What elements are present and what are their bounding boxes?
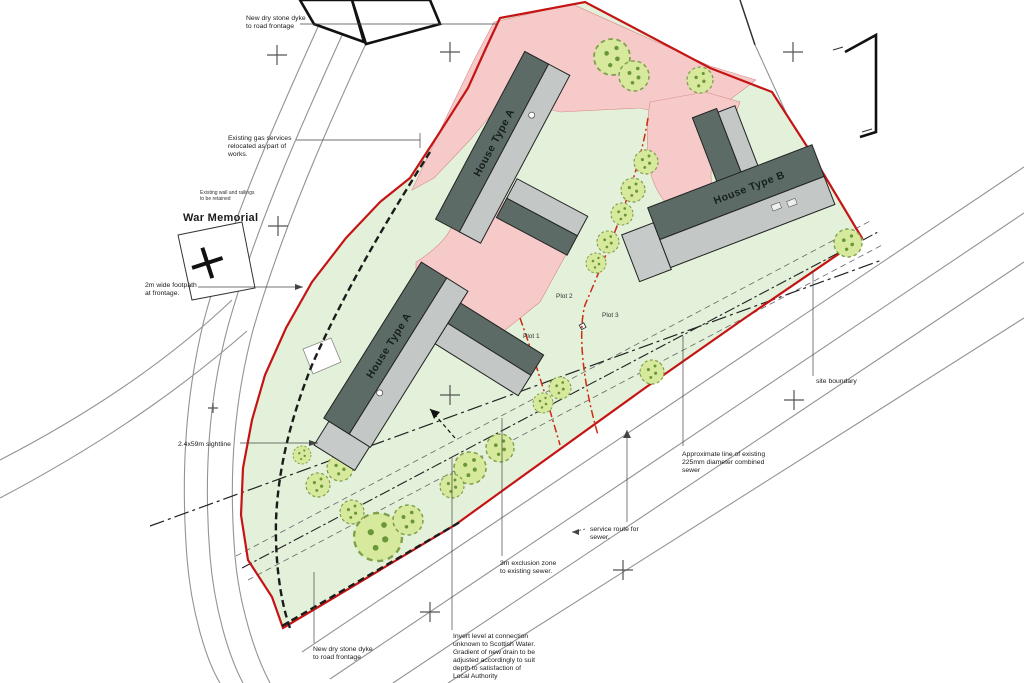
label-exclusion-zone: 3m exclusion zoneto existing sewer. <box>500 560 557 575</box>
tree <box>306 473 330 497</box>
label-war-memorial: War Memorial <box>183 212 258 224</box>
tree <box>340 500 364 524</box>
tree <box>834 229 862 257</box>
tree <box>621 178 645 202</box>
label-site-boundary: site boundary <box>816 378 857 385</box>
tree <box>619 61 649 91</box>
label-plot-2: Plot 2 <box>556 293 573 300</box>
label-sightline: 2.4x59m sightline <box>178 441 231 448</box>
tree <box>533 393 553 413</box>
tree <box>611 203 633 225</box>
tree <box>597 231 619 253</box>
tree <box>393 505 423 535</box>
tree <box>634 150 658 174</box>
label-plot-3: Plot 3 <box>602 312 619 319</box>
tree <box>586 253 606 273</box>
tree <box>486 434 514 462</box>
label-plot-1: Plot 1 <box>523 333 540 340</box>
tree <box>293 446 311 464</box>
site-plan-drawing: House Type A House Type A House Type B <box>0 0 1024 683</box>
tree <box>640 360 664 384</box>
tree <box>549 377 571 399</box>
tree <box>687 67 713 93</box>
site-plan-page: House Type A House Type A House Type B <box>0 0 1024 683</box>
